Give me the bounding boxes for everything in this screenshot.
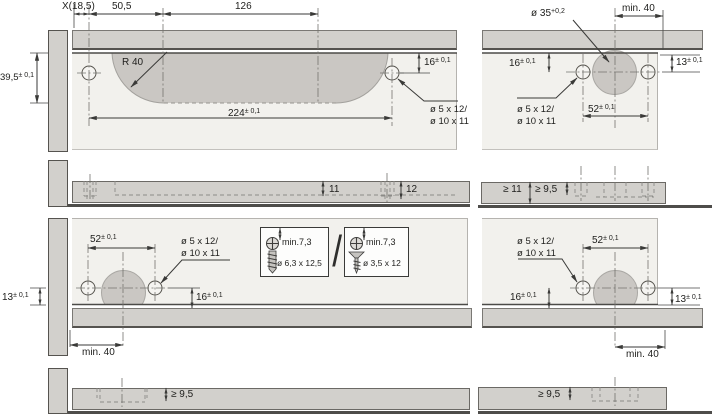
screw-spec-box-2 [344, 227, 409, 277]
dim-label-224: 224± 0,1 [228, 106, 260, 119]
dim-label-126: 126 [235, 1, 252, 12]
panel-edge-view-bottom-left [72, 388, 470, 410]
dim-label-min40-bottom-left: min. 40 [82, 347, 115, 358]
dim-label-16-top-right: 16± 0,1 [509, 56, 536, 69]
top-profile-rail-left [72, 30, 457, 50]
dim-label-16-top-left: 16± 0,1 [424, 55, 451, 68]
bottom-profile-rail-left [72, 308, 472, 328]
hole-spec-bottom-right-1: ø 5 x 12/ [517, 236, 554, 247]
dim-label-50-5: 50,5 [112, 1, 131, 12]
dim-label-ge95-top: ≥ 9,5 [535, 184, 557, 195]
hole-spec-bottom-left-2: ø 10 x 11 [181, 248, 220, 259]
dim-label-39-5: 39,5± 0,1 [0, 70, 34, 83]
dim-label-min40-top: min. 40 [622, 3, 655, 14]
dim-label-ge95-bottom-left: ≥ 9,5 [171, 389, 193, 400]
cabinet-side-section-bottom-left [48, 218, 68, 356]
screw1-size: ø 6,3 x 12,5 [277, 258, 322, 269]
hole-spec-top-left-1: ø 5 x 12/ [430, 104, 467, 115]
dim-label-13-top-right: 13± 0,1 [676, 55, 703, 68]
baseline-top-left [68, 204, 470, 207]
cup-hole-35mm-top-right [592, 50, 637, 95]
technical-drawing: X(18,5) 50,5 126 39,5± 0,1 R 40 16± 0,1 … [0, 0, 720, 416]
screw2-min-depth: min.7,3 [366, 237, 396, 248]
cabinet-side-section-edge-left [48, 160, 68, 207]
dim-label-13-bottom-left: 13± 0,1 [2, 290, 29, 303]
cup-hole-35mm-bottom-right [593, 270, 638, 305]
dim-label-52-bottom-right: 52± 0,1 [592, 233, 619, 246]
hole-spec-bottom-right-2: ø 10 x 11 [517, 248, 556, 259]
cup-hole-35mm-bottom-left [101, 270, 146, 305]
hole-spec-top-right-2: ø 10 x 11 [517, 116, 556, 127]
cabinet-side-section-top-left [48, 30, 68, 152]
front-panel-face-bottom-right [482, 218, 658, 304]
screw2-size: ø 3,5 x 12 [363, 258, 401, 269]
dim-label-dia35: ø 35+0,2 [531, 6, 565, 19]
dim-label-16-bottom-right: 16± 0,1 [510, 290, 537, 303]
top-profile-rail-right [482, 30, 703, 50]
screw1-min-depth: min.7,3 [282, 237, 312, 248]
baseline-top-right [478, 205, 712, 208]
hole-spec-bottom-left-1: ø 5 x 12/ [181, 236, 218, 247]
baseline-bottom-left [68, 411, 470, 414]
baseline-bottom-right [478, 411, 712, 414]
dim-label-ge11: ≥ 11 [503, 184, 522, 195]
screw-option-slash: / [332, 229, 342, 275]
screw-spec-box-1 [260, 227, 329, 277]
dim-label-52-bottom-left: 52± 0,1 [90, 232, 117, 245]
dim-label-ge95-bottom-right: ≥ 9,5 [538, 389, 560, 400]
cabinet-side-section-edge-bottom-left [48, 368, 68, 414]
hole-spec-top-right-1: ø 5 x 12/ [517, 104, 554, 115]
dim-label-52-top-right: 52± 0,1 [588, 102, 615, 115]
hole-spec-top-left-2: ø 10 x 11 [430, 116, 469, 127]
dim-label-x: X(18,5) [62, 1, 95, 12]
bottom-profile-rail-right [482, 308, 703, 328]
dim-label-16-bottom-left: 16± 0,1 [196, 290, 223, 303]
dim-label-r40: R 40 [122, 57, 143, 68]
panel-edge-view-bottom-right [478, 387, 667, 410]
dim-label-min40-bottom-right: min. 40 [626, 349, 659, 360]
dim-label-12: 12 [406, 184, 417, 195]
dim-label-13-bottom-right: 13± 0,1 [675, 292, 702, 305]
dim-label-11: 11 [329, 184, 339, 195]
